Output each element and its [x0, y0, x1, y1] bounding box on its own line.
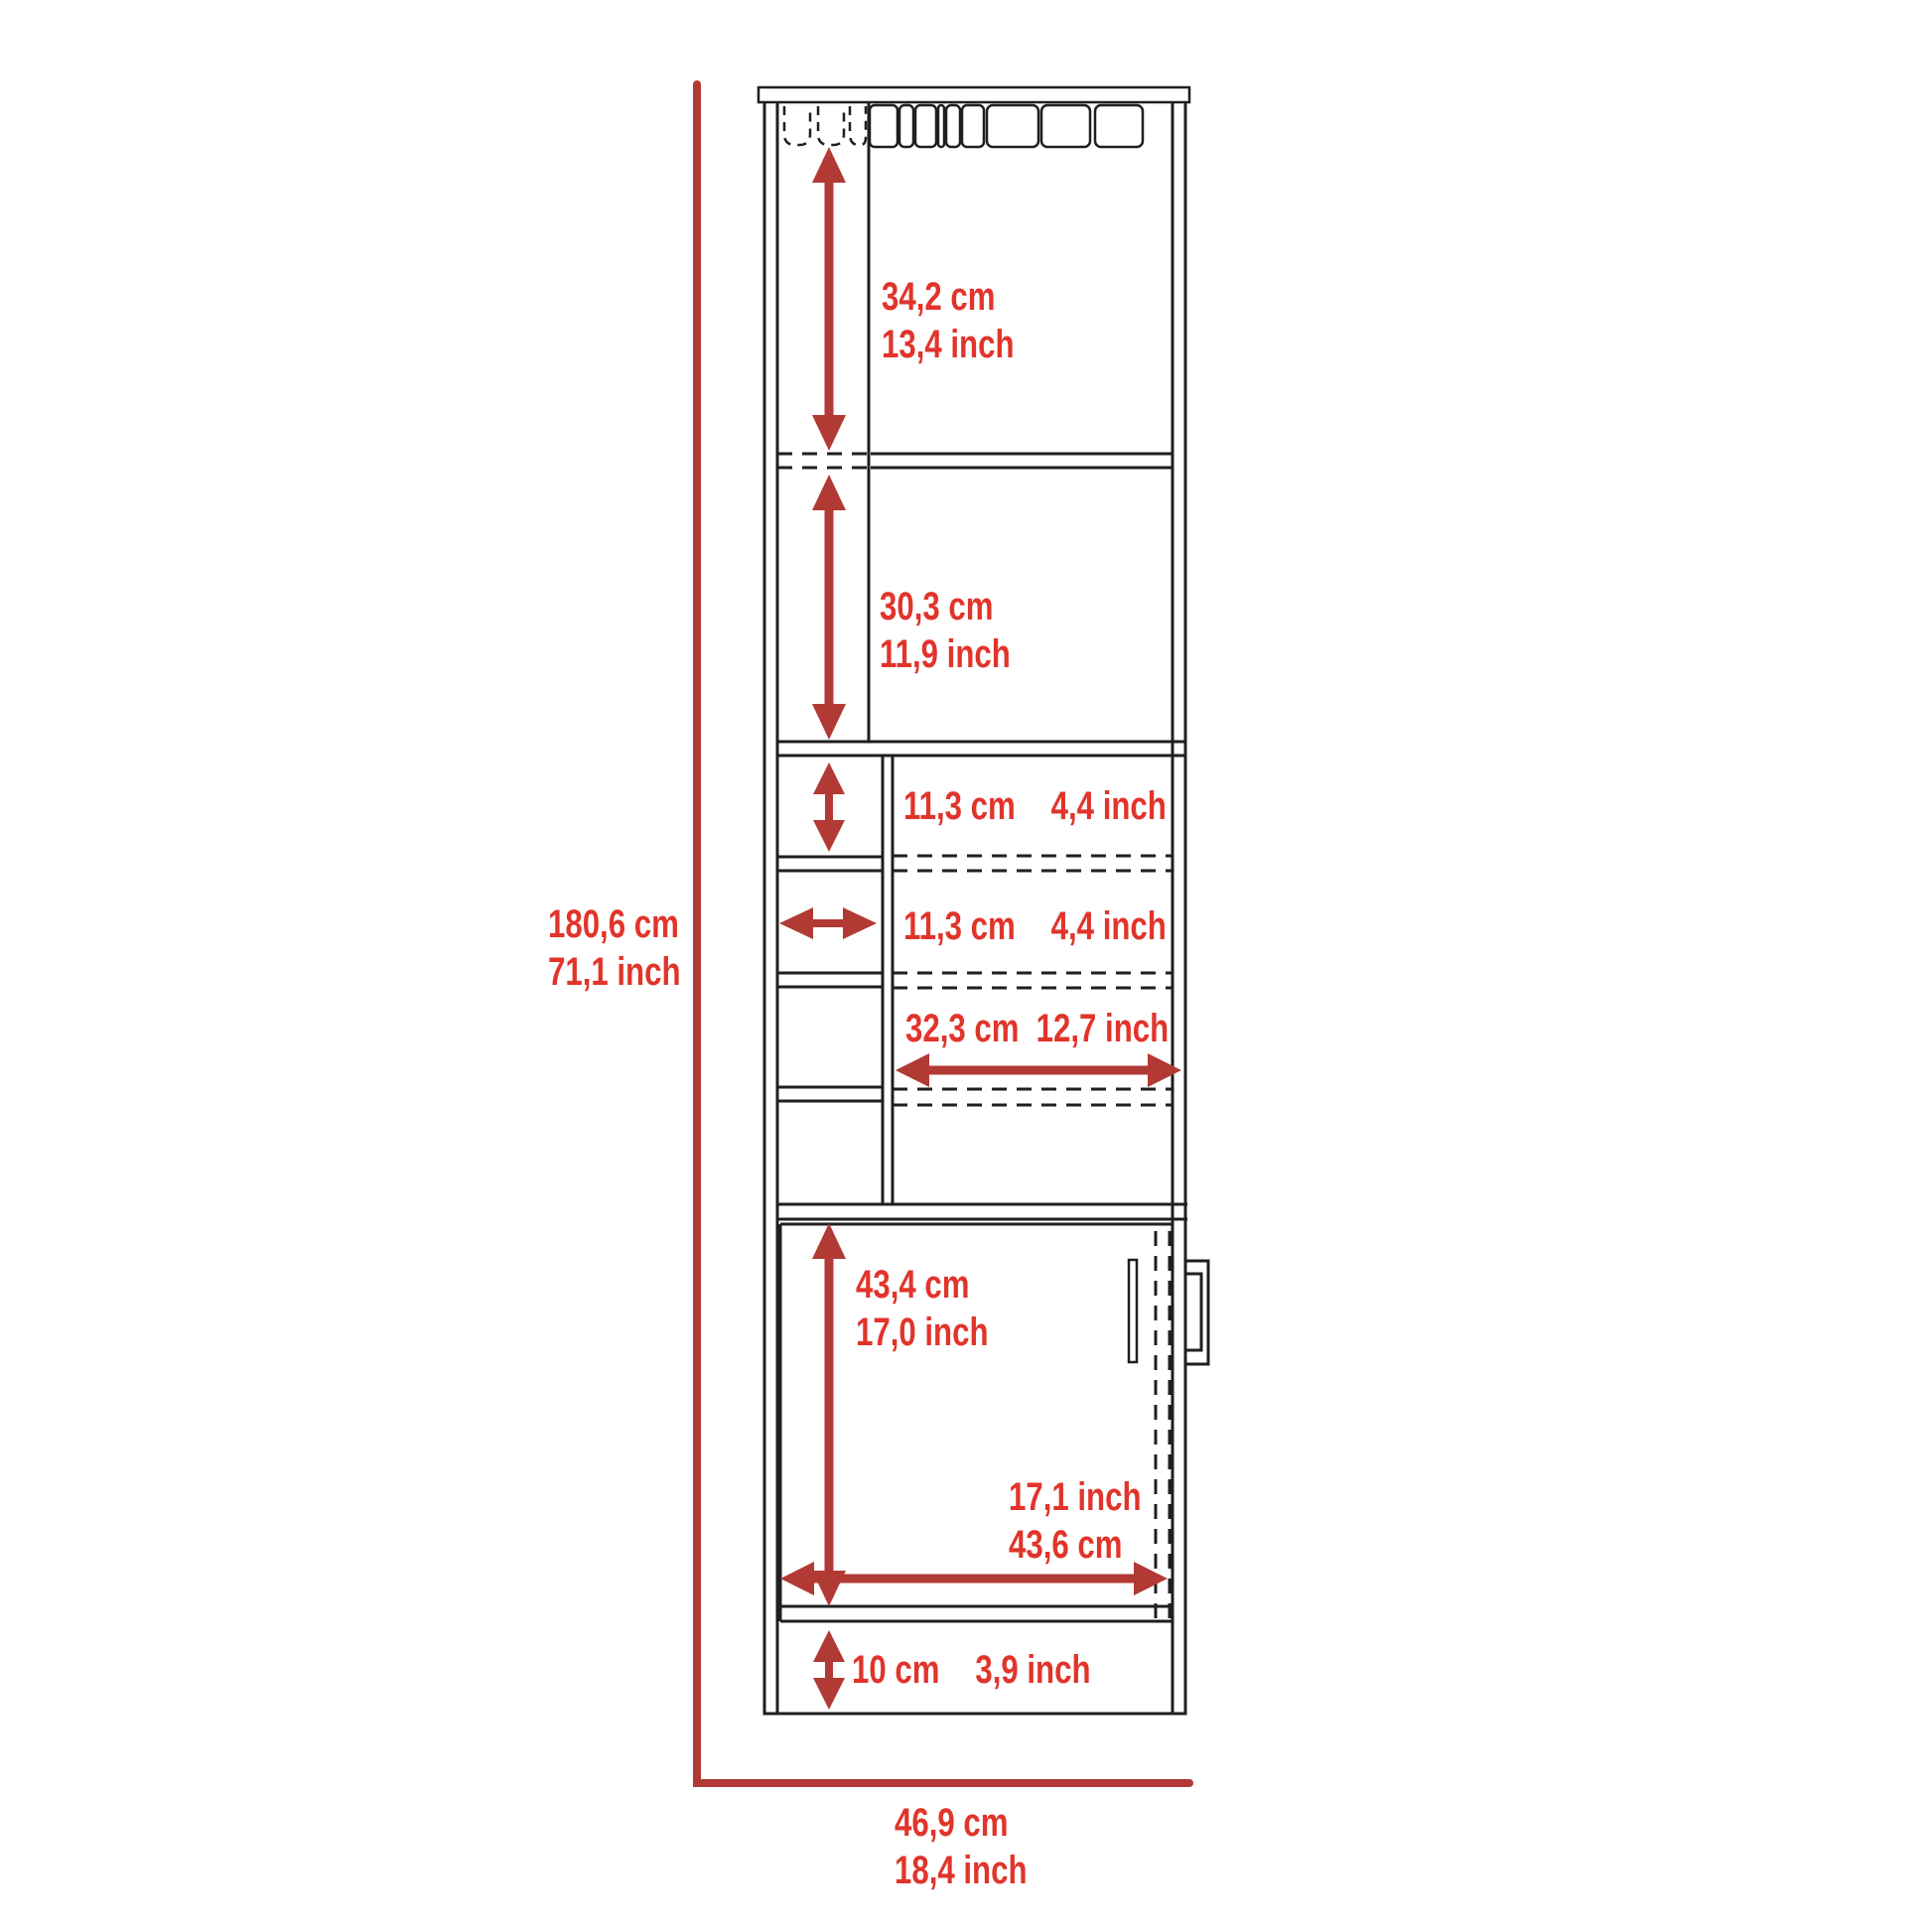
door-handle-front: [1129, 1260, 1137, 1362]
label-top-section-height: 34,2 cm 13,4 inch: [882, 273, 1015, 368]
inner-shelf-width-inch: 12,7 inch: [1036, 1007, 1170, 1050]
label-door-width: 17,1 inch 43,6 cm: [1009, 1473, 1142, 1569]
arrow-base-height: [813, 1630, 845, 1710]
second-section-cm: 30,3 cm: [880, 583, 1011, 630]
arrow-door-height: [812, 1223, 846, 1606]
door-height-cm: 43,4 cm: [856, 1261, 989, 1309]
cubby-height-inch: 4,4 inch: [1051, 784, 1167, 828]
door-width-inch: 17,1 inch: [1009, 1473, 1142, 1521]
label-cubby-width: 11,3 cm4,4 inch: [903, 902, 1167, 950]
removable-shelf-upper: [777, 454, 1173, 468]
stemware-rack: [784, 105, 1143, 147]
label-cubby-height: 11,3 cm4,4 inch: [903, 782, 1167, 830]
label-total-width: 46,9 cm 18,4 inch: [895, 1799, 1028, 1894]
arrow-top-section-height: [812, 147, 846, 451]
second-section-inch: 11,9 inch: [880, 630, 1011, 678]
arrow-inner-shelf-width: [896, 1053, 1181, 1087]
label-inner-shelf-width: 32,3 cm12,7 inch: [905, 1005, 1169, 1052]
arrow-cubby-height: [813, 762, 845, 852]
cubby-divider: [883, 756, 893, 1204]
total-height-cm: 180,6 cm: [548, 900, 681, 948]
label-second-section-height: 30,3 cm 11,9 inch: [880, 583, 1011, 678]
arrow-cubby-width: [779, 907, 877, 939]
cabinet-door: [780, 1224, 1208, 1621]
label-base-height: 10 cm3,9 inch: [852, 1646, 1091, 1694]
cubby-shelves: [777, 857, 883, 1101]
door-height-inch: 17,0 inch: [856, 1309, 989, 1356]
total-width-cm: 46,9 cm: [895, 1799, 1028, 1847]
arrow-second-section-height: [812, 475, 846, 740]
fixed-shelf-mid: [777, 742, 1185, 756]
counter-shelf: [777, 1204, 1187, 1219]
cubby-width-cm: 11,3 cm: [903, 904, 1016, 948]
door-width-cm: 43,6 cm: [1009, 1521, 1142, 1569]
top-section-inch: 13,4 inch: [882, 321, 1015, 368]
cubby-height-cm: 11,3 cm: [903, 784, 1016, 828]
inner-shelf-width-cm: 32,3 cm: [905, 1007, 1019, 1050]
cubby-width-inch: 4,4 inch: [1051, 904, 1167, 948]
base-height-inch: 3,9 inch: [975, 1648, 1090, 1692]
top-section-cm: 34,2 cm: [882, 273, 1015, 321]
door-handle-side: [1185, 1261, 1208, 1364]
total-height-inch: 71,1 inch: [548, 948, 681, 996]
base-height-cm: 10 cm: [852, 1648, 939, 1692]
total-width-inch: 18,4 inch: [895, 1847, 1028, 1894]
label-total-height: 180,6 cm 71,1 inch: [548, 900, 681, 996]
dimension-diagram: 180,6 cm 71,1 inch 34,2 cm 13,4 inch 30,…: [0, 0, 1932, 1932]
label-door-height: 43,4 cm 17,0 inch: [856, 1261, 989, 1356]
